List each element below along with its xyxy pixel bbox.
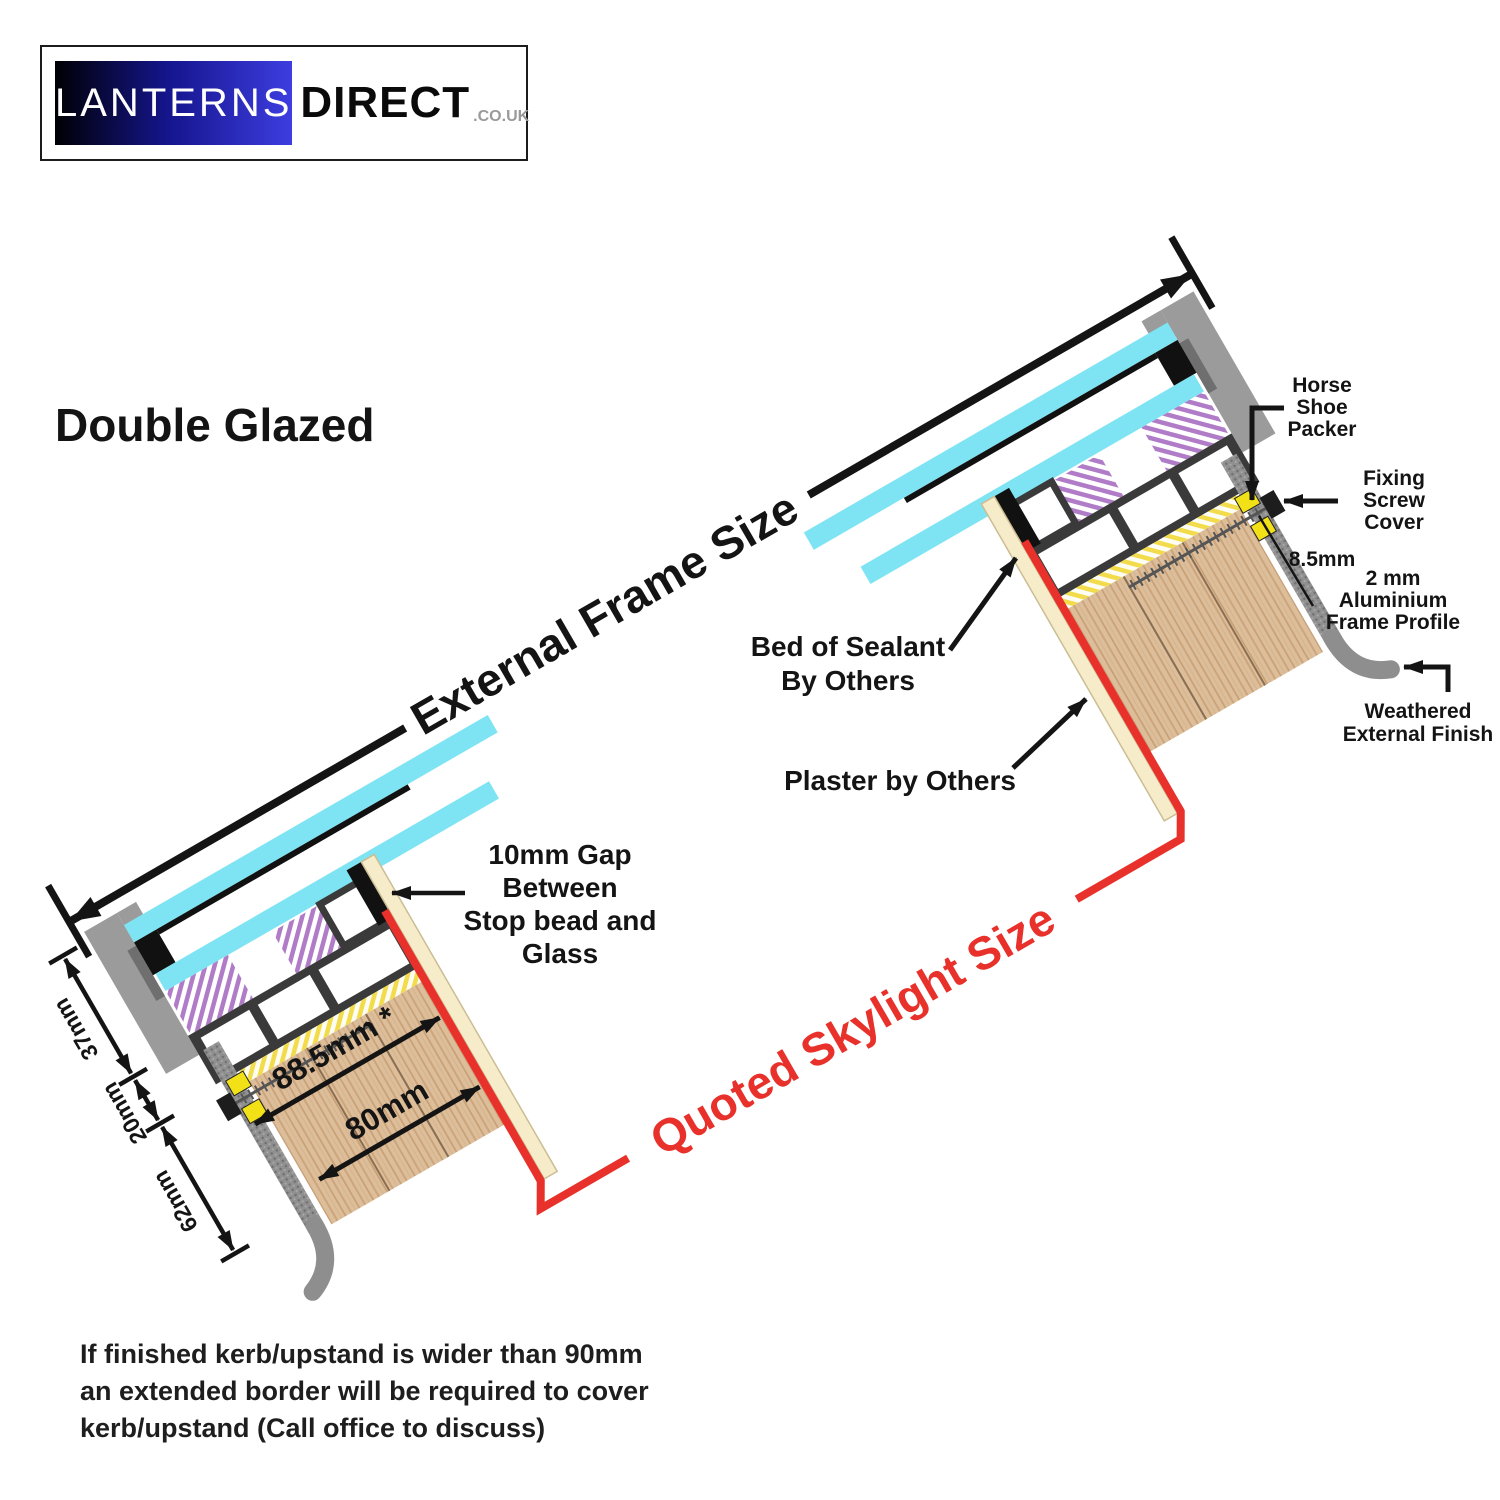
plaster-label: Plaster by Others bbox=[784, 765, 1016, 796]
chain-tick-3 bbox=[146, 1116, 174, 1132]
sealant-label-1: Bed of Sealant bbox=[751, 631, 945, 662]
gap-85-label: 8.5mm bbox=[1289, 548, 1356, 571]
plaster-leader bbox=[1013, 699, 1086, 768]
gap-label-4: Glass bbox=[522, 938, 598, 969]
weathered-label-2: External Finish bbox=[1343, 723, 1494, 746]
chain-tick-2 bbox=[119, 1069, 147, 1085]
callout-10mm-gap: 10mm Gap Between Stop bead and Glass bbox=[392, 839, 656, 969]
skylight-section-diagram: External Frame Size Quoted Skylight Size… bbox=[0, 0, 1500, 1500]
gap-label-2: Between bbox=[502, 872, 617, 903]
weathered-leader bbox=[1404, 667, 1448, 692]
fixing-screw-label-2: Screw bbox=[1363, 489, 1426, 512]
horse-shoe-label-2: Shoe bbox=[1296, 396, 1347, 419]
fixing-screw-label-3: Cover bbox=[1364, 511, 1424, 534]
horse-shoe-label-1: Horse bbox=[1292, 374, 1352, 397]
sealant-leader bbox=[950, 558, 1016, 650]
quoted-skylight-size-label: Quoted Skylight Size bbox=[641, 892, 1063, 1166]
callout-sealant: Bed of Sealant By Others bbox=[751, 558, 1016, 696]
dim-tick-left bbox=[48, 886, 89, 957]
callout-fixing-screw-cover: Fixing Screw Cover bbox=[1284, 467, 1426, 534]
alu-label-2: Aluminium bbox=[1339, 589, 1448, 612]
callout-aluminium-profile: 2 mm Aluminium Frame Profile bbox=[1326, 567, 1460, 634]
callout-weathered-finish: Weathered External Finish bbox=[1343, 667, 1494, 746]
dim-37mm-label: 37mm bbox=[48, 994, 104, 1065]
chain-tick-1 bbox=[49, 948, 77, 964]
alu-label-1: 2 mm bbox=[1366, 567, 1421, 590]
rotated-scene: External Frame Size Quoted Skylight Size… bbox=[0, 237, 1447, 1394]
external-frame-size-label: External Frame Size bbox=[402, 481, 807, 745]
dim-20mm-label: 20mm bbox=[96, 1078, 152, 1149]
gap-label-3: Stop bead and bbox=[464, 905, 657, 936]
callout-plaster: Plaster by Others bbox=[784, 699, 1086, 796]
chain-tick-4 bbox=[221, 1245, 249, 1261]
weathered-label-1: Weathered bbox=[1365, 700, 1472, 723]
alu-label-3: Frame Profile bbox=[1326, 611, 1460, 634]
gap-label-1: 10mm Gap bbox=[488, 839, 631, 870]
dim-line-right bbox=[809, 275, 1191, 496]
quoted-line-right bbox=[1062, 806, 1193, 899]
page: LANTERNS DIRECT .CO.UK Double Glazed If … bbox=[0, 0, 1500, 1500]
horse-shoe-label-3: Packer bbox=[1288, 418, 1357, 441]
sealant-label-2: By Others bbox=[781, 665, 915, 696]
dim-62mm-label: 62mm bbox=[147, 1166, 203, 1237]
fixing-screw-label-1: Fixing bbox=[1363, 467, 1425, 490]
